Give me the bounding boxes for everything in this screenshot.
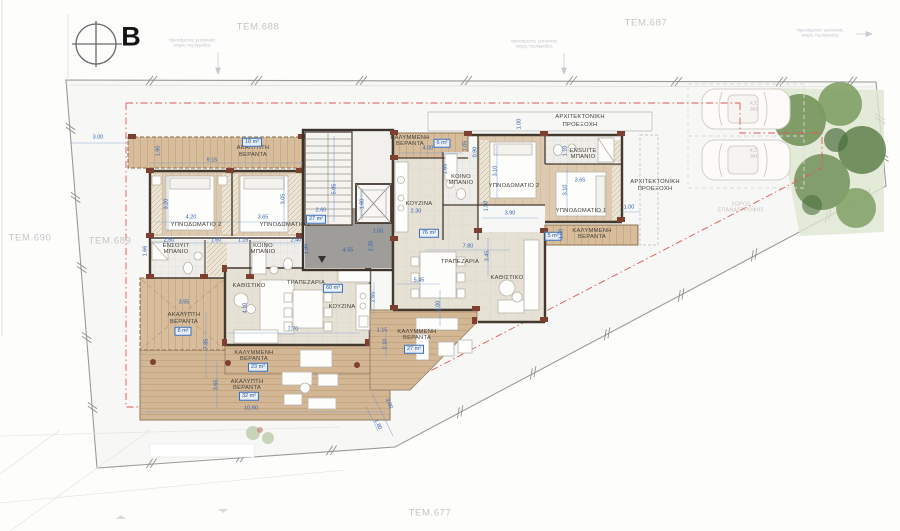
dim: 1.15	[377, 328, 388, 334]
room-label-kitchen-a: ΚΟΥΖΙΝΑ	[329, 305, 356, 311]
area-badge-8: 8 m²	[175, 327, 192, 336]
area-badge-6: 6 m²	[434, 139, 451, 148]
north-label: B	[121, 24, 141, 51]
dim: 10.90	[244, 406, 258, 412]
dim: 4.00	[423, 146, 434, 152]
car-301	[702, 140, 790, 180]
dim: 7.85	[204, 339, 210, 350]
dim: 3.65	[258, 215, 269, 221]
dim: 4.20	[186, 215, 197, 221]
room-label-living-b: ΚΑΘΙΣΤΙΚΟ	[491, 276, 524, 282]
label-arch-projection-right: ΑΡΧΙΤΕΚΤΟΝΙΚΗ	[630, 180, 680, 186]
dim: 2.40	[291, 238, 302, 244]
room-label-veranda-5: ΒΕΡΑΝΤΑ	[578, 235, 606, 241]
room-label-veranda-18: ΑΚΑΛΥΠΤΗ	[237, 146, 270, 152]
dim: 3.65	[575, 178, 586, 184]
dim: 1.50	[484, 201, 490, 212]
dim: 1.60	[211, 238, 222, 244]
dim: 3.55	[179, 300, 190, 306]
area-badge-32: 32 m²	[239, 392, 259, 401]
room-label-bath-a: ΜΠΑΝΙΟ	[251, 250, 276, 256]
room-label-veranda-18: ΒΕΡΑΝΤΑ	[239, 153, 267, 159]
dim: 1.00	[517, 119, 523, 130]
dim: 1.60	[360, 199, 366, 210]
dim: 1.00	[624, 205, 635, 211]
fence-note: τοίχος περίφραξης	[173, 44, 211, 49]
parcel-688: ΤΕΜ.688	[237, 22, 280, 32]
dim: 4.00	[436, 301, 442, 312]
dim: 1.10	[563, 146, 569, 157]
dim: 1.80	[304, 244, 310, 255]
room-label-veranda-8: ΑΚΑΛΥΠΤΗ	[168, 313, 201, 319]
dim: 7.80	[463, 244, 474, 250]
room-label-bedroom2-a: ΥΠΝΟΔΩΜΑΤΙΟ 2	[171, 223, 222, 229]
dim: 1.65	[443, 164, 449, 175]
room-label-veranda-6: ΒΕΡΑΝΤΑ	[396, 142, 424, 148]
area-badge-60: 60 m²	[323, 284, 343, 293]
room-label-veranda-27: ΒΕΡΑΝΤΑ	[403, 336, 431, 342]
dim: 1.90	[156, 146, 162, 157]
fence-note: τοίχος περίφραξης	[515, 45, 553, 50]
area-badge-76: 76 m²	[419, 229, 439, 238]
area-badge-27: 27 m²	[404, 345, 424, 354]
dim: 2.30	[411, 209, 422, 215]
turning-area-label: ΕΠΑΝΑΣΤΡΟΦΗΣ	[718, 208, 764, 213]
label-arch-projection-top: ΠΡΟΕΞΟΧΗ	[563, 123, 598, 129]
dim: 5.45	[414, 278, 425, 284]
dim: 1.05	[463, 141, 469, 152]
dim: 2.10	[383, 339, 389, 350]
dim: 3.90	[505, 211, 516, 217]
room-label-bedroom1-a: ΥΠΝΟΔΩΜΑΤΙΟ 1	[260, 223, 311, 229]
room-label-bedroom2-b: ΥΠΝΟΔΩΜΑΤΙΟ 2	[489, 184, 540, 190]
room-label-veranda-8: ΒΕΡΑΝΤΑ	[170, 320, 198, 326]
room-label-dining-a: ΤΡΑΠΕΖΑΡΙΑ	[287, 281, 325, 287]
fence-note: τοίχος περίφραξης	[801, 34, 839, 39]
dim: 3.45	[485, 251, 491, 262]
north-symbol	[72, 21, 122, 67]
room-label-ensuite-b: ΜΠΑΝΙΟ	[571, 155, 596, 161]
dim: 3.10	[563, 185, 569, 196]
parcel-689: ΤΕΜ.689	[89, 236, 132, 246]
dim: 7.70	[288, 327, 299, 333]
room-label-bath-b: ΜΠΑΝΙΟ	[449, 181, 474, 187]
dim: 3.05	[281, 194, 287, 205]
dim: 2.50	[164, 238, 175, 244]
room-label-ensuite-a: ΜΠΑΝΙΟ	[164, 250, 189, 256]
room-label-kitchen-b: ΚΟΥΖΙΝΑ	[406, 202, 433, 208]
dim: 9.15	[207, 158, 218, 164]
parking-space-302-num: 302	[750, 109, 758, 114]
dim: 3.65	[214, 380, 220, 391]
area-badge-18: 18 m²	[242, 138, 262, 147]
dim: 1.15	[238, 238, 249, 244]
dim: 2.60	[316, 208, 327, 214]
room-label-living-a: ΚΑΘΙΣΤΙΚΟ	[233, 284, 266, 290]
parking-area	[688, 84, 804, 188]
dim: 1.00	[559, 229, 565, 240]
dim: 4.10	[243, 303, 249, 314]
label-arch-projection-top: ΑΡΧΙΤΕΚΤΟΝΙΚΗ	[555, 115, 605, 121]
dim: 1.66	[143, 246, 149, 257]
room-label-bedroom1-b: ΥΠΝΟΔΩΜΑΤΙΟ 1	[556, 209, 607, 215]
dim: 3.20	[164, 199, 170, 210]
dim: 2.20	[369, 241, 375, 252]
car-302	[702, 89, 790, 129]
floor-plan-canvas: B ΤΕΜ.688 ΤΕΜ.687 ΤΕΜ.690 ΤΕΜ.689 ΤΕΜ.67…	[0, 0, 900, 531]
dim: 5.05	[332, 184, 338, 195]
area-badge-core-27: 27 m²	[306, 215, 326, 224]
parcel-687: ΤΕΜ.687	[625, 18, 668, 28]
dim: 0.90	[473, 147, 479, 158]
dim: 4.55	[343, 248, 354, 254]
parcel-690: ΤΕΜ.690	[9, 233, 52, 243]
dim: 3.10	[493, 166, 499, 177]
dim: 2.65	[371, 292, 377, 303]
dim: 1.50	[373, 229, 384, 235]
dim: 3.00	[93, 135, 104, 141]
area-badge-23: 23 m²	[248, 363, 268, 372]
label-arch-projection-right: ΠΡΟΕΞΟΧΗ	[638, 187, 673, 193]
parcel-677: ΤΕΜ.677	[409, 508, 452, 518]
parking-space-301-num: 301	[750, 156, 758, 161]
room-label-dining-b: ΤΡΑΠΕΖΑΡΙΑ	[441, 260, 479, 266]
